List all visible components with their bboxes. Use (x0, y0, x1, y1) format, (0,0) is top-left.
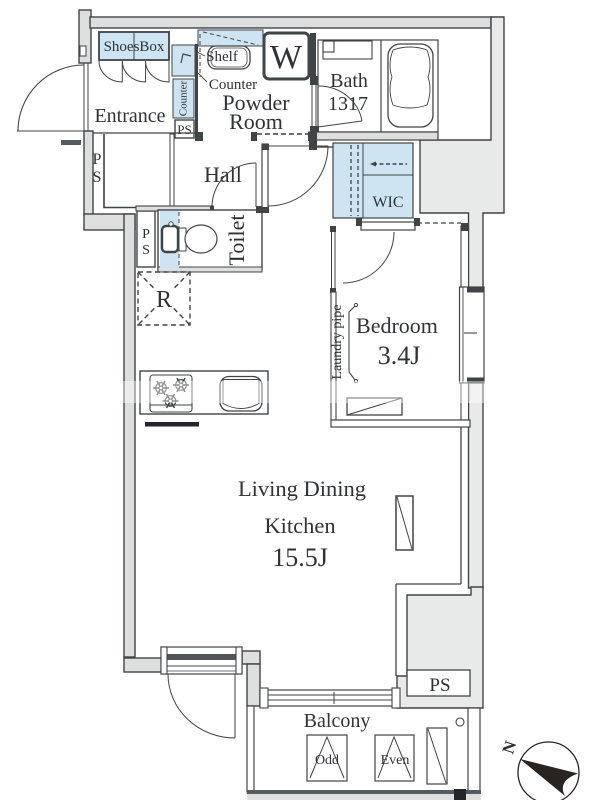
svg-text:15.5J: 15.5J (272, 543, 328, 572)
svg-text:Bedroom: Bedroom (356, 313, 438, 338)
svg-text:Entrance: Entrance (94, 105, 165, 127)
svg-text:ShoesBox: ShoesBox (104, 39, 165, 55)
svg-text:PS: PS (177, 122, 191, 137)
svg-text:WIC: WIC (372, 194, 403, 211)
svg-text:Laundry pipe: Laundry pipe (330, 304, 345, 379)
svg-text:P: P (93, 151, 102, 168)
svg-text:S: S (142, 243, 150, 258)
svg-text:Balcony: Balcony (304, 710, 371, 732)
svg-text:Shelf: Shelf (206, 49, 238, 65)
svg-text:Room: Room (229, 109, 283, 134)
svg-text:Even: Even (381, 753, 410, 768)
svg-text:P: P (142, 227, 150, 242)
svg-text:Living Dining: Living Dining (238, 476, 366, 501)
svg-text:S: S (93, 169, 102, 186)
svg-text:Counter: Counter (178, 80, 190, 116)
svg-text:Toilet: Toilet (224, 214, 249, 265)
svg-text:W: W (270, 39, 303, 76)
svg-text:R: R (156, 287, 172, 313)
svg-text:PS: PS (429, 675, 450, 696)
svg-text:Hall: Hall (204, 162, 242, 187)
svg-text:Odd: Odd (315, 753, 339, 768)
svg-text:Kitchen: Kitchen (264, 513, 335, 538)
svg-text:3.4J: 3.4J (378, 341, 421, 370)
